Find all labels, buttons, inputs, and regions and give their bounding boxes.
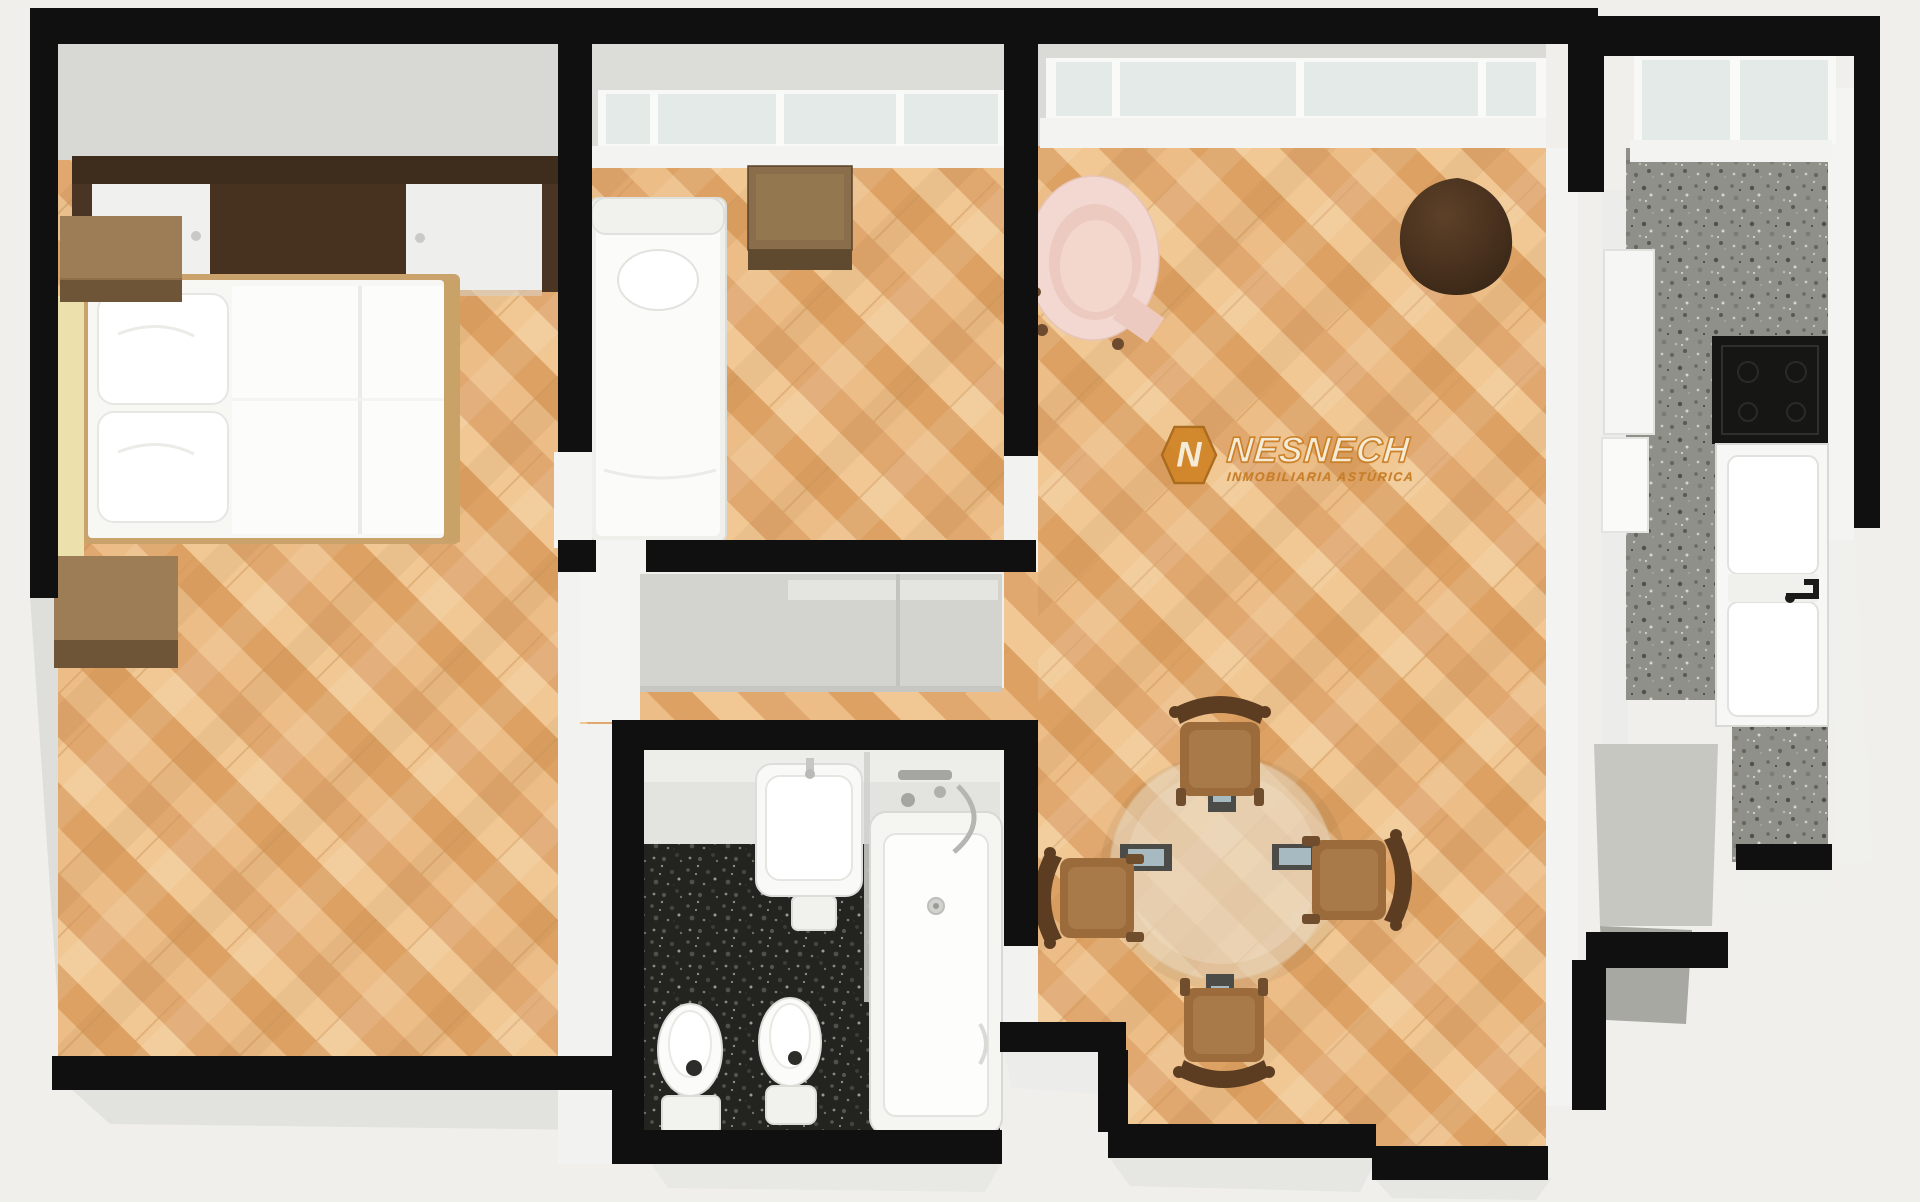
dining-chair-south bbox=[1173, 978, 1275, 1088]
wall-sw-step bbox=[1098, 1050, 1128, 1132]
bedside-cube bbox=[748, 166, 852, 270]
window-kitchen bbox=[1630, 54, 1836, 162]
wall-bathroom-north bbox=[612, 720, 1004, 750]
kitchen-counter bbox=[1604, 250, 1654, 434]
wall-living-sw-notch bbox=[1000, 1022, 1126, 1052]
wardrobe-knob bbox=[191, 231, 201, 241]
duvet bbox=[232, 286, 444, 534]
hall-door-panel bbox=[580, 572, 640, 722]
nightstand-b bbox=[54, 556, 178, 668]
wall-kitchen-south bbox=[1586, 932, 1728, 968]
wall-left bbox=[30, 8, 58, 598]
wall-kitchen-passage bbox=[1736, 844, 1832, 870]
built-in-closet bbox=[640, 574, 1002, 692]
nightstand-a bbox=[60, 216, 182, 302]
basin-faucet bbox=[805, 769, 815, 779]
toilet bbox=[658, 1004, 722, 1134]
living-doorway-floor bbox=[1004, 572, 1040, 724]
dining-chair-north bbox=[1169, 696, 1271, 806]
door-bedroom-2 bbox=[554, 452, 592, 548]
kitchen-door-panel bbox=[1602, 438, 1648, 532]
brand-tagline: INMOBILIARIA ASTÚRICA bbox=[1226, 470, 1415, 484]
wall-living-south-b bbox=[1372, 1146, 1548, 1180]
bed-frame-foot bbox=[444, 280, 460, 542]
floor-plan bbox=[0, 0, 1920, 1202]
brand-watermark: N NESNECH INMOBILIARIA ASTÚRICA bbox=[1160, 424, 1415, 491]
wall-top bbox=[30, 8, 1598, 44]
stove-cooktop bbox=[1712, 336, 1828, 444]
floor-plan-render: N NESNECH INMOBILIARIA ASTÚRICA bbox=[0, 0, 1920, 1202]
wall-top-kitchen bbox=[1598, 16, 1880, 56]
single-bed bbox=[590, 198, 726, 542]
bidet bbox=[759, 998, 821, 1124]
door-hallway bbox=[596, 540, 646, 572]
wall-bedroom-1-south bbox=[52, 1056, 618, 1090]
wall-living-south-a bbox=[1108, 1124, 1376, 1158]
kitchen-sink bbox=[1716, 444, 1828, 726]
logo-initial: N bbox=[1176, 436, 1202, 475]
wall-living-east-lower bbox=[1572, 960, 1606, 1110]
wall-kitchen-west-upper bbox=[1568, 40, 1604, 192]
wall-kitchen-east bbox=[1854, 44, 1880, 528]
window-bedroom-2 bbox=[590, 90, 1004, 168]
hexagon-logo-icon: N bbox=[1160, 424, 1218, 486]
window-living-room bbox=[1040, 58, 1546, 148]
brand-name: NESNECH bbox=[1225, 432, 1416, 468]
dining-chair-west bbox=[1034, 847, 1144, 949]
brand-logo-icon: N bbox=[1160, 424, 1218, 491]
wardrobe-knob bbox=[415, 233, 425, 243]
double-bed bbox=[84, 274, 460, 544]
wall-living-west-upper bbox=[1004, 44, 1038, 456]
wall-bathroom-south bbox=[612, 1130, 1002, 1164]
wall-living-west-lower bbox=[1004, 720, 1038, 946]
pillow bbox=[98, 412, 228, 522]
hallway-floor bbox=[580, 688, 1004, 724]
pillow bbox=[98, 294, 228, 404]
dining-chair-east bbox=[1302, 829, 1412, 931]
pillow bbox=[618, 250, 698, 310]
wall-bathroom-west bbox=[612, 720, 644, 1164]
